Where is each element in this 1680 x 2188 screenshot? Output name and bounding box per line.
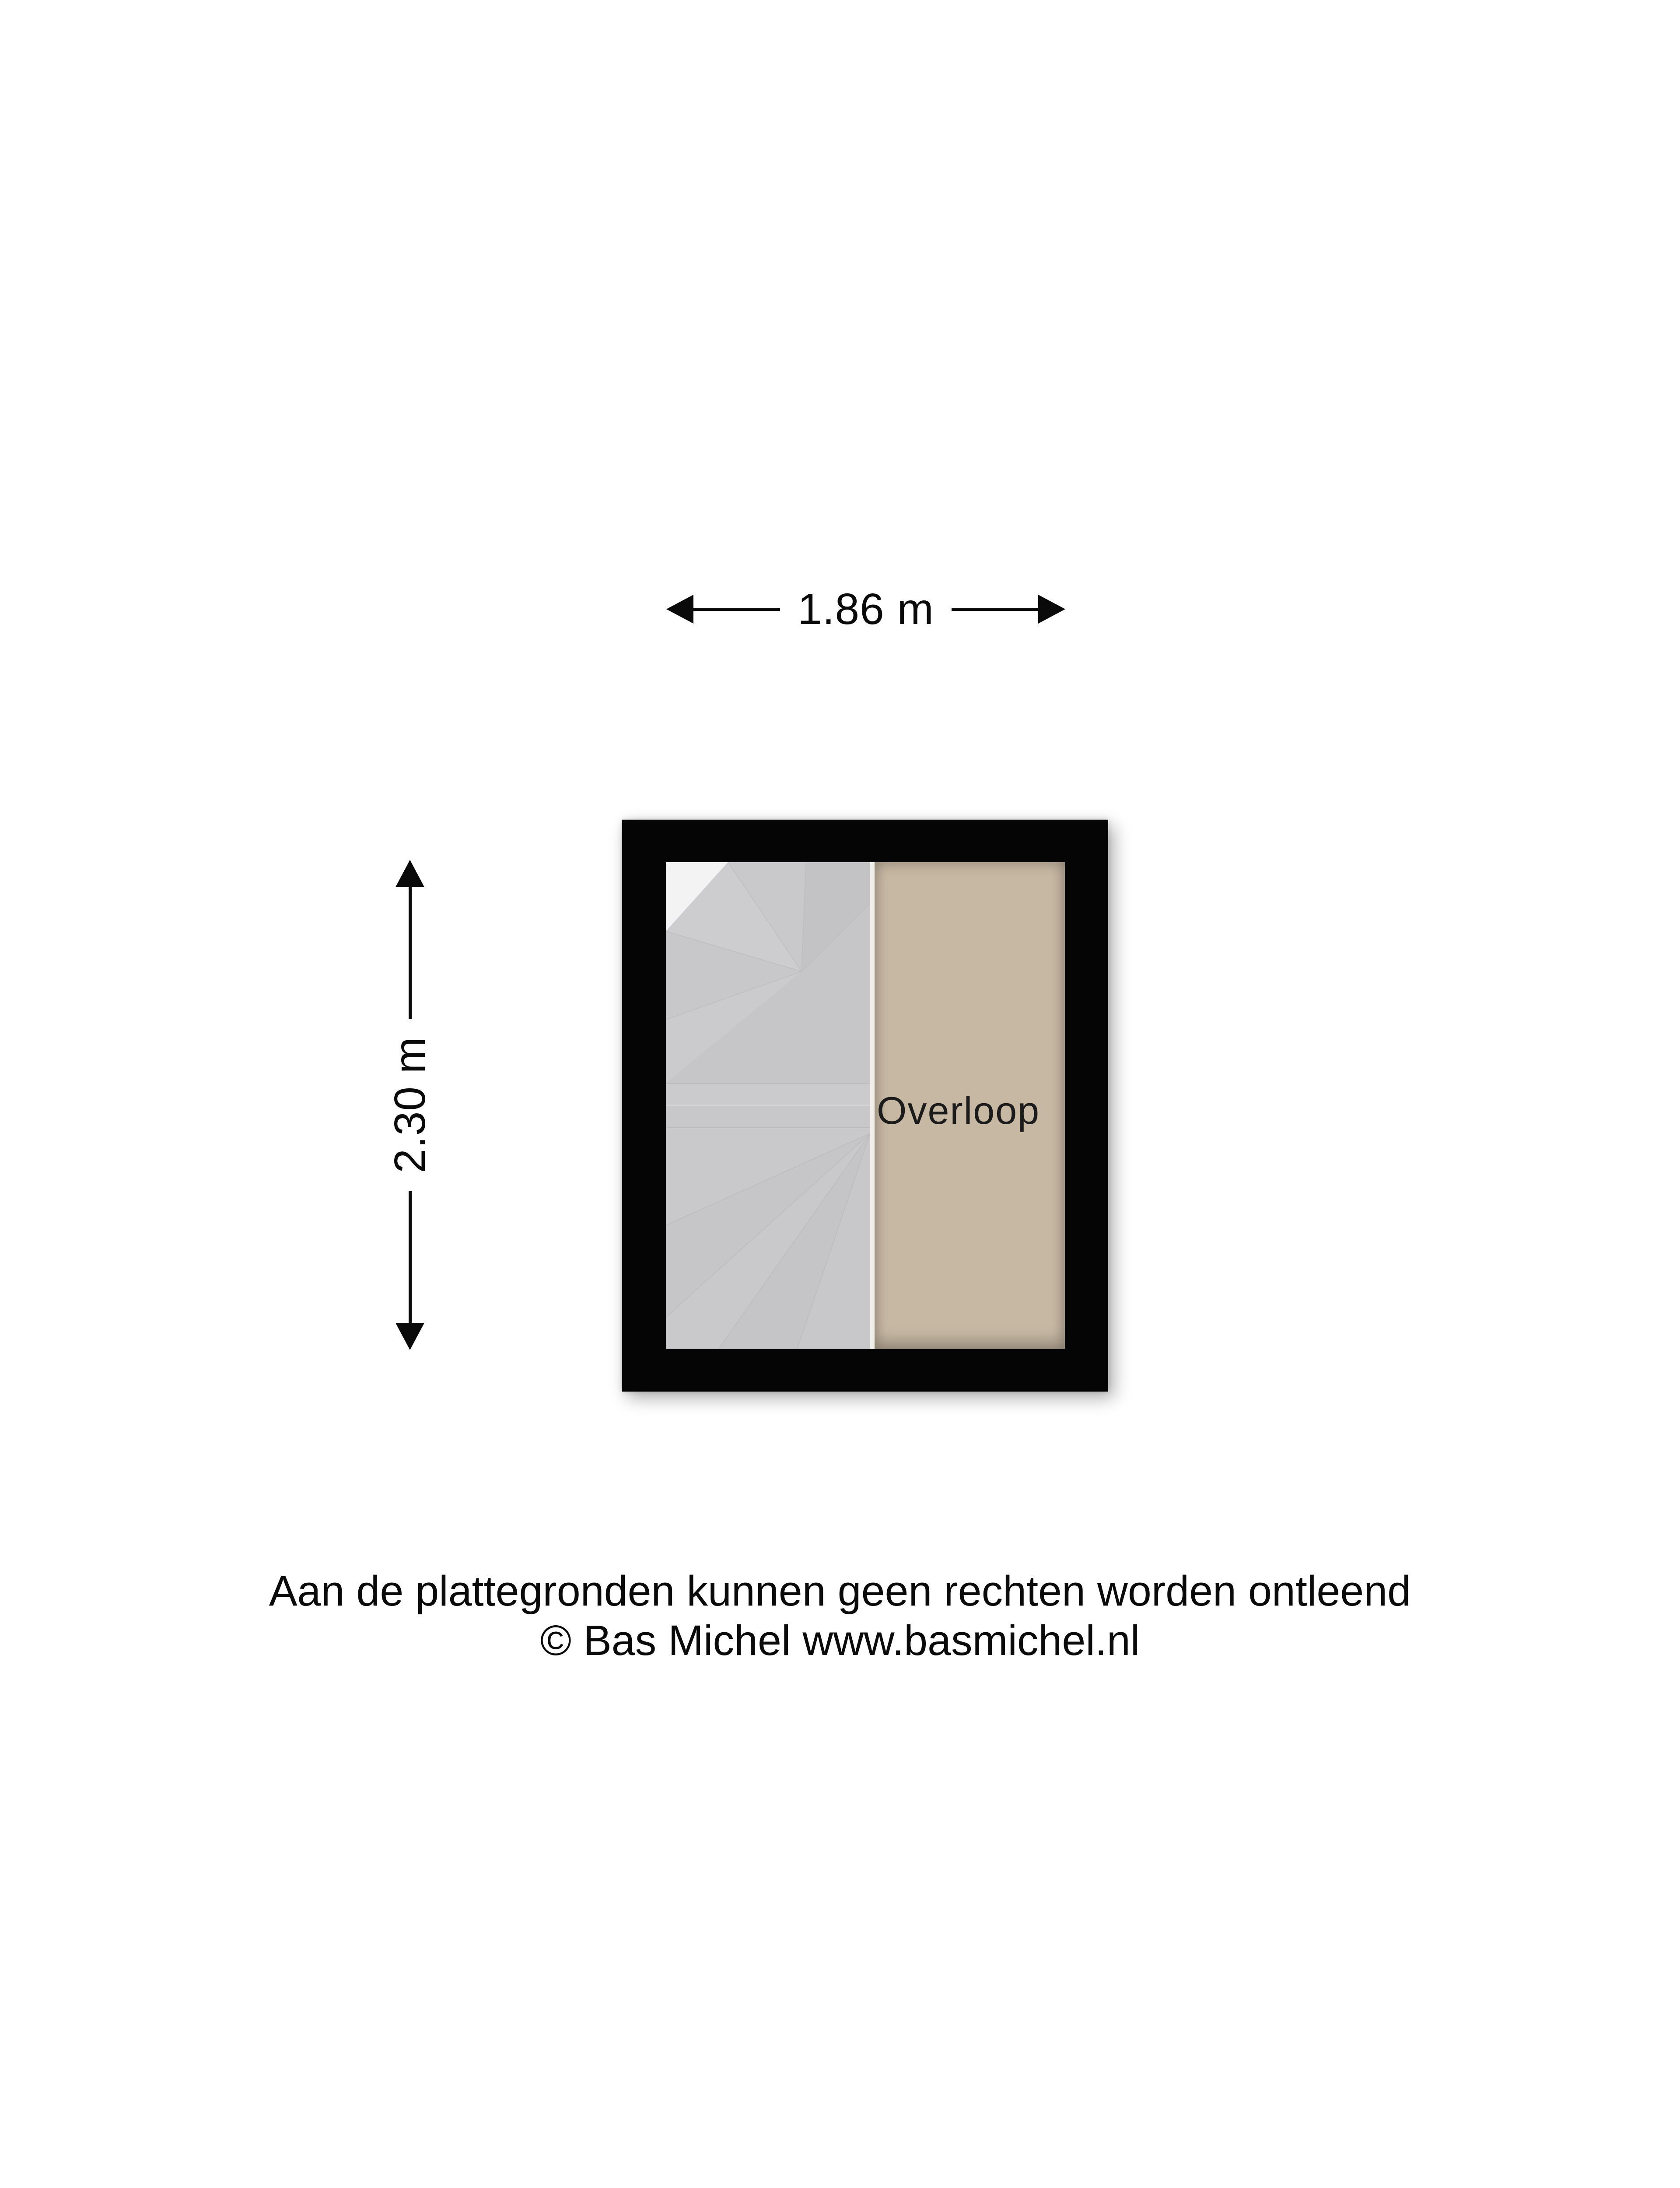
stair-middle-treads [666,1083,870,1128]
height-dimension-label: 2.30 m [388,1019,432,1191]
room-overloop: Overloop [875,862,1065,1349]
arrow-left-icon [666,595,693,624]
floorplan-outer-walls: Overloop [622,820,1108,1392]
dimension-line [409,1191,412,1323]
dimension-line [693,608,780,611]
arrow-down-icon [395,1323,424,1350]
floorplan-page: 1.86 m 2.30 m [0,0,1680,2188]
disclaimer: Aan de plattegronden kunnen geen rechten… [0,1567,1680,1665]
height-dimension: 2.30 m [379,860,441,1350]
dimension-line [952,608,1038,611]
width-dimension-label: 1.86 m [780,587,952,631]
staircase-area [666,862,870,1349]
disclaimer-line1: Aan de plattegronden kunnen geen rechten… [0,1567,1680,1616]
arrow-up-icon [395,860,424,887]
arrow-right-icon [1038,595,1065,624]
room-label: Overloop [877,1091,1040,1130]
dimension-line [409,887,412,1019]
copyright-line: © Bas Michel www.basmichel.nl [0,1616,1680,1666]
stair-room-divider [870,862,875,1349]
staircase-drawing [666,862,870,1349]
floorplan-interior: Overloop [666,862,1065,1349]
stair-lower-winders [666,1128,870,1349]
width-dimension: 1.86 m [666,579,1065,640]
